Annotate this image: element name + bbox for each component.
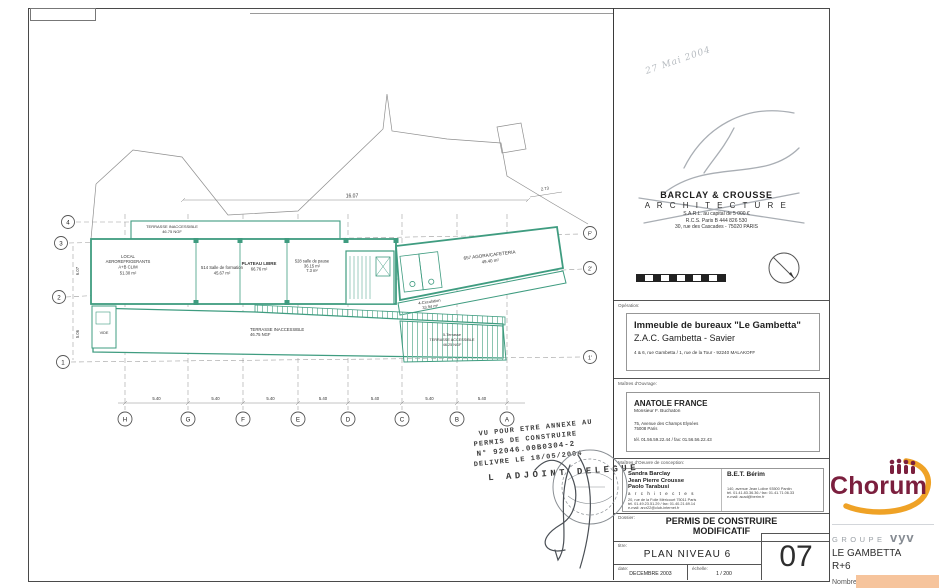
room-label-line: 51.30 m²	[120, 270, 137, 275]
room-label-line: 45.67 m²	[214, 271, 231, 276]
project-name: LE GAMBETTA	[832, 548, 920, 561]
svg-text:G: G	[186, 416, 191, 423]
room-label-line: 7.3 m²	[306, 268, 318, 273]
dim-label: 16.07	[346, 194, 359, 200]
operation-label: Opération:	[618, 303, 639, 308]
room-label-line: VIDE	[100, 331, 109, 335]
room-label-line: 46.25 NGF	[443, 343, 462, 347]
owner-contact: Monsieur F. Buchaton	[634, 409, 819, 414]
architectural-drawing-sheet: 16.07 2.73 6.07 5.06	[0, 0, 939, 588]
north-arrow-icon	[764, 248, 804, 288]
section-divider	[614, 378, 829, 379]
section-divider	[761, 533, 829, 534]
operation-box: Immeuble de bureaux "Le Gambetta" Z.A.C.…	[626, 313, 820, 371]
svg-text:C: C	[400, 416, 405, 423]
owner-address2: 75008 Paris	[634, 426, 819, 431]
sheet-scale: 1 / 200	[687, 571, 761, 577]
project-subtitle: Z.A.C. Gambetta - Savier	[634, 333, 819, 343]
room-label-line: 46.75 NGF	[162, 229, 182, 234]
svg-text:H: H	[123, 416, 127, 423]
svg-text:5.40: 5.40	[371, 396, 380, 401]
chorum-wordmark: Chorum	[830, 472, 927, 501]
room-label-line: A+B CLIM	[118, 264, 138, 269]
svg-text:B: B	[455, 416, 459, 423]
svg-text:5.40: 5.40	[266, 396, 275, 401]
dim-label: 2.73	[540, 185, 549, 191]
svg-text:4: 4	[66, 219, 70, 226]
bet-cell: B.E.T. Bérim 140, avenue Jean Lolive 935…	[727, 471, 819, 499]
bet-name: B.E.T. Bérim	[727, 471, 819, 478]
project-address: 4 & 6, rue Gambetta / 1, rue de la Tour …	[634, 350, 819, 355]
grid-axis-bottom	[118, 401, 525, 405]
round-stamp-and-signature	[500, 430, 660, 575]
designers-divider	[721, 469, 722, 511]
svg-text:E: E	[296, 416, 300, 423]
project-level: R+6	[832, 561, 920, 574]
architect-stamp-block: BARCLAY & CROUSSE A R C H I T E C T U R …	[629, 190, 804, 230]
svg-text:5.40: 5.40	[478, 396, 487, 401]
site-boundary-lines	[91, 94, 588, 239]
svg-text:5.40: 5.40	[319, 396, 328, 401]
bet-email: e-mail: acad@berim.fr	[727, 495, 819, 499]
svg-text:5.40: 5.40	[152, 396, 161, 401]
room-label-line: 514 Salle de formation	[201, 265, 244, 270]
owner-phone: tél. 01.56.59.22.44 / fax: 01.56.56.22.4…	[634, 437, 819, 442]
handwritten-date: 27 Mai 2004	[644, 45, 712, 77]
project-title: Immeuble de bureaux "Le Gambetta"	[634, 320, 819, 331]
svg-text:5.40: 5.40	[425, 396, 434, 401]
graphic-scale-bar	[636, 274, 726, 282]
svg-text:1': 1'	[588, 355, 592, 361]
groupe-row: GROUPE vyv	[832, 524, 934, 547]
architect-discipline: A R C H I T E C T U R E	[629, 201, 804, 211]
room-label-line: 5-Terrasse	[443, 333, 461, 337]
architect-address: 30, rue des Cascades - 75020 PARIS	[629, 224, 804, 230]
top-dimension	[181, 192, 562, 202]
room-label-line: 46.75 NGF	[250, 332, 271, 337]
svg-text:3: 3	[59, 240, 63, 247]
room-label-line: 66.76 m²	[251, 266, 268, 271]
svg-text:D: D	[346, 416, 351, 423]
svg-text:2: 2	[57, 294, 61, 301]
svg-text:2': 2'	[588, 266, 592, 272]
dim-label: 6.07	[75, 266, 80, 275]
section-divider	[614, 300, 829, 301]
groupe-label: GROUPE	[832, 535, 886, 544]
svg-text:F: F	[241, 416, 245, 423]
sheet-number: 07	[761, 533, 830, 580]
vyv-wordmark: vyv	[890, 530, 915, 545]
svg-text:1: 1	[61, 359, 65, 366]
room-label-line: TERRASSE ACCESSIBLE	[429, 338, 475, 342]
owner-name: ANATOLE FRANCE	[634, 399, 819, 408]
footer-accent-bar	[856, 575, 939, 588]
span-dimensions: 5.405.40 5.405.40 5.405.40 5.40	[152, 396, 486, 401]
building-walls	[91, 221, 566, 362]
dim-label: 5.06	[75, 329, 80, 338]
svg-text:F': F'	[588, 231, 592, 237]
architect-name: BARCLAY & CROUSSE	[629, 190, 804, 201]
svg-text:5.40: 5.40	[211, 396, 220, 401]
room-label-line: PLATEAU LIBRE	[242, 261, 277, 266]
owner-label: Maîtres d'Ouvrage:	[618, 381, 657, 386]
